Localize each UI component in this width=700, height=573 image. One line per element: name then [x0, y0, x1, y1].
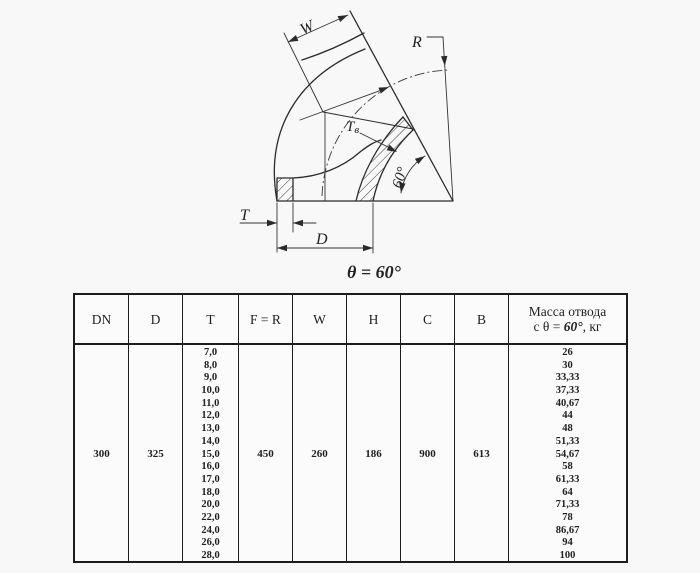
value-mass-list: 263033,3337,3340,67444851,3354,675861,33…: [509, 345, 626, 563]
header-c: C: [401, 295, 455, 345]
header-d: D: [129, 295, 183, 345]
value-w: 260: [293, 345, 347, 563]
header-b: B: [455, 295, 509, 345]
value-t-list: 7,08,09,010,011,012,013,014,015,016,017,…: [183, 345, 239, 563]
spec-table: DN D T F = R W H C B Масса отвода с θ = …: [73, 293, 628, 563]
value-d: 325: [129, 345, 183, 563]
header-h: H: [347, 295, 401, 345]
header-t: T: [183, 295, 239, 345]
dimension-label-tv: Tв: [346, 119, 359, 136]
dimension-label-d: D: [315, 231, 328, 248]
value-f-r: 450: [239, 345, 293, 563]
dimension-label-r: R: [411, 34, 422, 51]
angle-label: 60°: [390, 165, 412, 190]
dimension-d: D: [277, 203, 373, 253]
dimension-label-w: W: [298, 17, 319, 39]
elbow-drawing: W R Tв 60°: [0, 0, 700, 292]
elbow-outline: [274, 11, 453, 201]
header-f-r: F = R: [239, 295, 293, 345]
header-dn: DN: [75, 295, 129, 345]
dimension-label-t: T: [240, 207, 250, 224]
centerlines: [322, 70, 450, 201]
dimension-r: R: [411, 34, 453, 201]
page: W R Tв 60°: [0, 0, 700, 573]
drawing-caption: θ = 60°: [347, 262, 402, 282]
header-mass: Масса отвода с θ = 60°, кг: [509, 295, 626, 345]
angle-60: 60°: [390, 153, 427, 193]
value-dn: 300: [75, 345, 129, 563]
value-c: 900: [401, 345, 455, 563]
value-h: 186: [347, 345, 401, 563]
value-b: 613: [455, 345, 509, 563]
dimension-t: T: [240, 203, 316, 252]
header-w: W: [293, 295, 347, 345]
